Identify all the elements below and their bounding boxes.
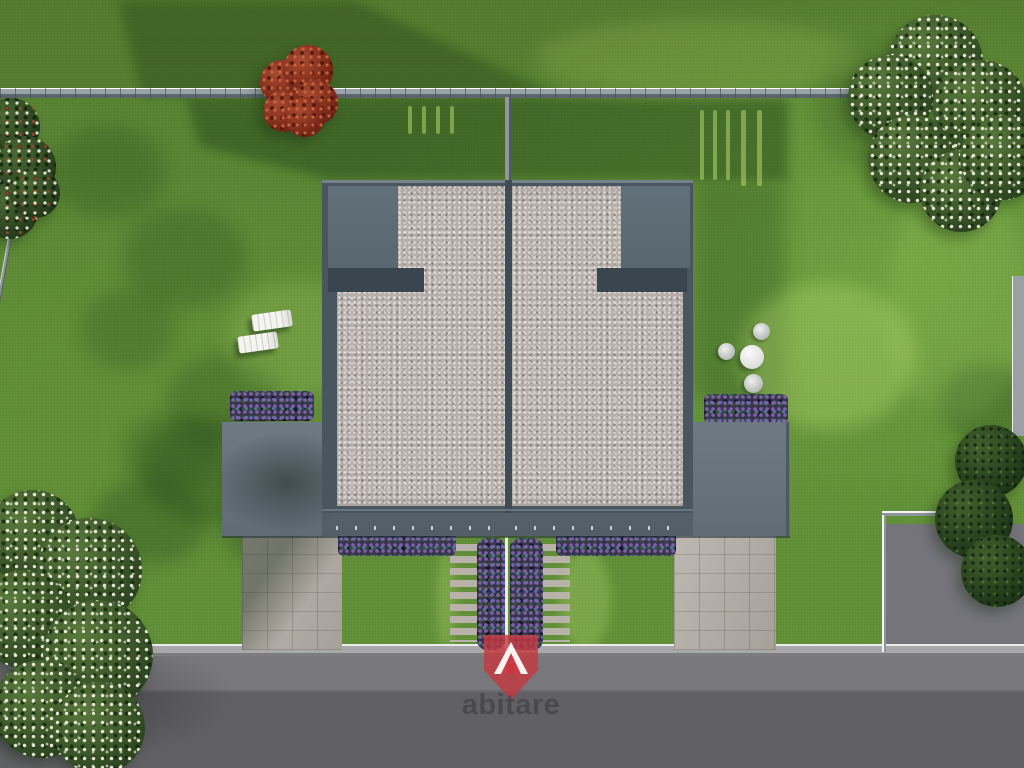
driveway-left (242, 536, 342, 650)
aerial-render-scene: abitare (0, 0, 1024, 768)
slab-shadow-under-roof (322, 512, 693, 536)
garden-chair (718, 343, 735, 360)
roof-step-shadow-left (328, 268, 424, 292)
property-divider-fence-top (505, 97, 511, 182)
flower-bed-right (704, 394, 788, 424)
watermark-logo-text: abitare (430, 689, 592, 722)
boundary-fence-top (0, 88, 882, 98)
roof-parapet-highlight-bottom (322, 509, 693, 511)
railing-light-stripe (450, 106, 454, 134)
flower-hedge-walkway-right (510, 538, 543, 650)
green-tree-bottom-right (935, 425, 1024, 615)
garden-chair (753, 323, 770, 340)
roof-step-shadow-right (597, 268, 687, 292)
flower-bed-left (230, 391, 314, 421)
roof-upper-terrace-left (328, 186, 398, 268)
garden-table (740, 345, 764, 369)
railing-light-stripe (700, 110, 704, 180)
railing-light-stripe (408, 106, 412, 134)
red-maple-tree (255, 45, 340, 140)
railing-light-stripe (436, 106, 440, 134)
railing-light-stripe (726, 110, 730, 180)
railing-light-stripe (741, 110, 746, 186)
entrance-steps-right (542, 544, 570, 642)
main-flat-roof (322, 180, 693, 513)
flower-hedge-walkway-left (477, 538, 505, 650)
garden-chair (744, 374, 763, 393)
railing-light-stripe (713, 110, 717, 180)
driveway-right (674, 536, 776, 650)
railing-light-stripe (757, 110, 762, 186)
slab-right-edge (786, 422, 789, 536)
flowering-tree-top-left (0, 98, 82, 248)
boundary-fence-right-vertical (882, 515, 886, 652)
flowering-tree-top-right (848, 15, 1024, 250)
railing-light-stripe (422, 106, 426, 134)
entrance-steps-left (450, 544, 479, 642)
flowering-tree-bottom-left (0, 490, 200, 768)
street-edge-strip (1012, 276, 1024, 436)
roof-party-wall-divider (505, 180, 512, 513)
roof-upper-terrace-right (620, 186, 690, 268)
terrace-railing-posts-left (336, 526, 506, 530)
terrace-railing-posts-right (515, 526, 683, 530)
